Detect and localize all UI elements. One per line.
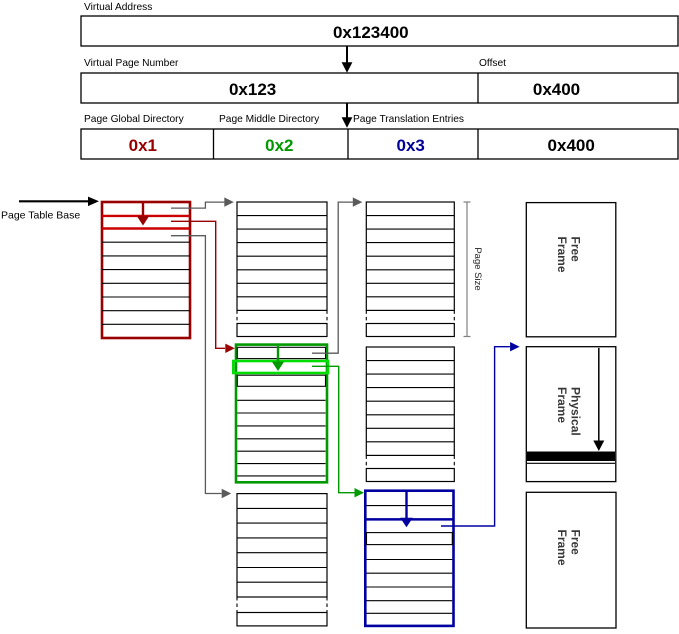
svg-text:Page Size: Page Size: [472, 247, 483, 290]
svg-text:Free: Free: [569, 237, 583, 263]
svg-text:0x400: 0x400: [533, 80, 580, 99]
svg-text:Page Middle Directory: Page Middle Directory: [219, 114, 320, 125]
svg-text:Page Translation Entries: Page Translation Entries: [353, 114, 464, 125]
svg-text:Offset: Offset: [479, 58, 506, 69]
svg-text:Free: Free: [569, 530, 583, 556]
svg-text:0x2: 0x2: [265, 136, 293, 155]
svg-text:Frame: Frame: [555, 237, 569, 273]
svg-text:Virtual Page Number: Virtual Page Number: [84, 58, 179, 69]
svg-text:0x3: 0x3: [397, 136, 425, 155]
svg-text:Physical: Physical: [569, 387, 583, 436]
svg-text:Virtual Address: Virtual Address: [84, 2, 152, 13]
svg-text:Page Table Base: Page Table Base: [1, 210, 80, 222]
svg-text:Page Global Directory: Page Global Directory: [84, 114, 185, 125]
svg-text:0x1: 0x1: [129, 136, 157, 155]
svg-text:0x400: 0x400: [548, 136, 595, 155]
svg-text:Frame: Frame: [555, 530, 569, 566]
svg-text:Frame: Frame: [555, 387, 569, 423]
svg-text:0x123400: 0x123400: [333, 23, 409, 42]
svg-text:0x123: 0x123: [229, 80, 276, 99]
